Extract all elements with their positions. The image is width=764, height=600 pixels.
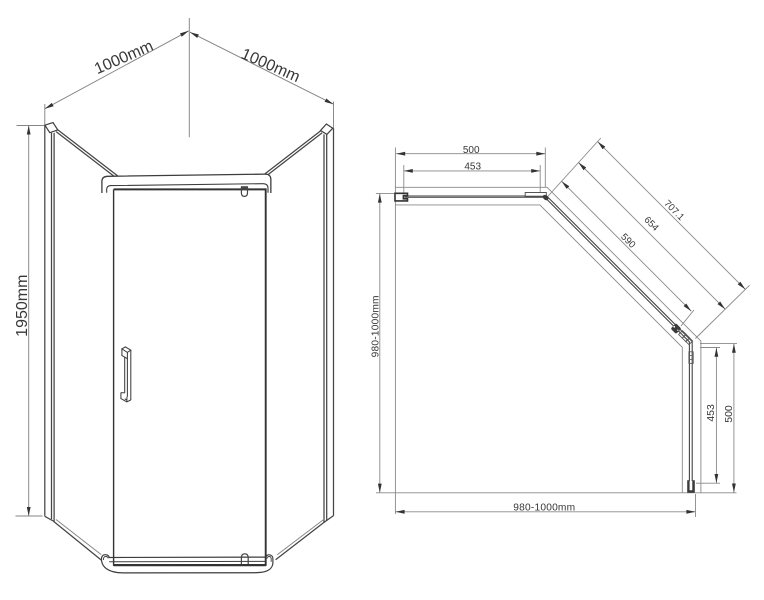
svg-text:980-1000mm: 980-1000mm <box>371 295 382 357</box>
svg-text:453: 453 <box>464 162 481 173</box>
svg-text:500: 500 <box>463 145 480 156</box>
svg-text:1950mm: 1950mm <box>14 275 31 337</box>
svg-text:453: 453 <box>705 404 717 422</box>
svg-text:500: 500 <box>723 405 735 423</box>
svg-text:980-1000mm: 980-1000mm <box>513 503 575 514</box>
